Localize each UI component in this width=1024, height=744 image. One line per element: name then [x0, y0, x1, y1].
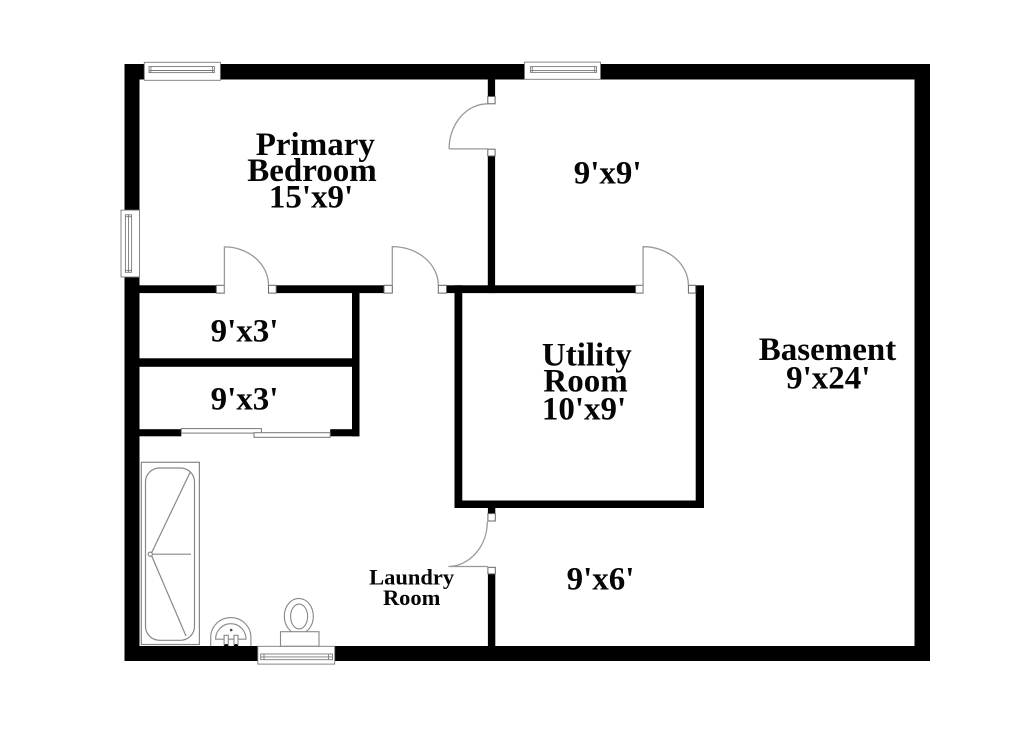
svg-text:9'x9': 9'x9' — [574, 156, 642, 192]
svg-text:15'x9': 15'x9' — [269, 180, 353, 216]
svg-text:9'x24': 9'x24' — [786, 361, 870, 397]
svg-text:10'x9': 10'x9' — [542, 392, 626, 428]
svg-text:9'x3': 9'x3' — [211, 314, 279, 350]
svg-text:9'x6': 9'x6' — [567, 562, 635, 598]
svg-text:9'x3': 9'x3' — [211, 382, 279, 418]
svg-text:Room: Room — [383, 585, 441, 610]
